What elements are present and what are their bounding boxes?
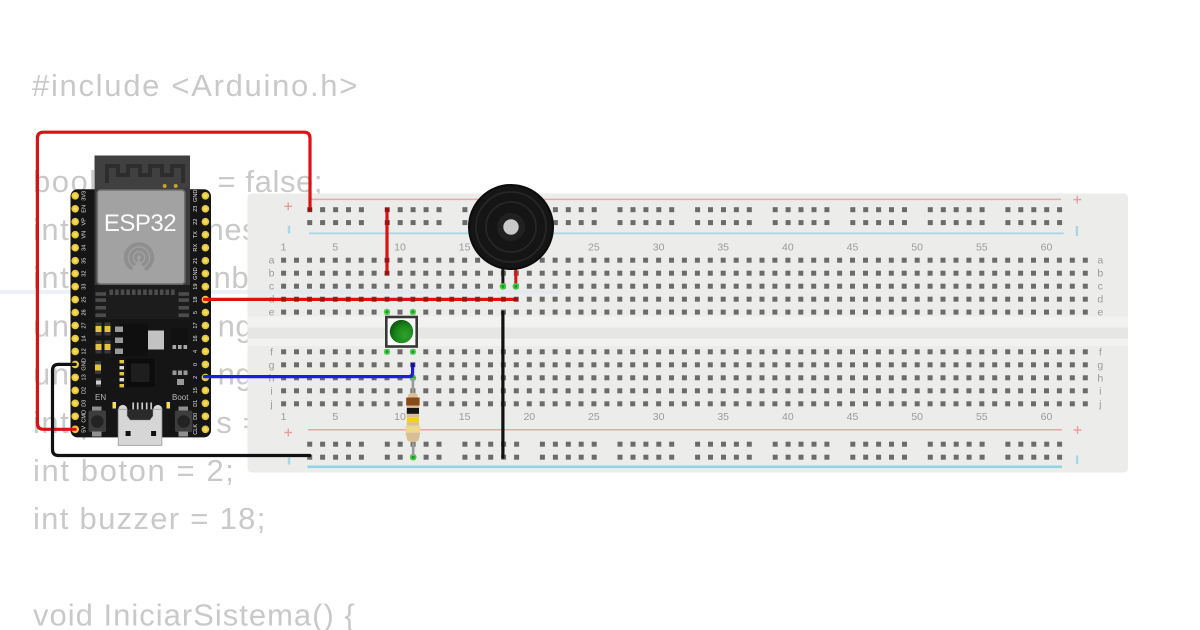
svg-text:35: 35 [81,258,87,264]
svg-text:D3: D3 [81,400,87,407]
svg-text:25: 25 [81,296,87,302]
svg-text:2: 2 [193,376,199,379]
svg-text:VN: VN [81,231,87,239]
svg-text:10: 10 [394,411,406,423]
svg-text:EN: EN [81,205,87,213]
svg-text:a: a [269,255,275,267]
svg-text:50: 50 [911,242,923,254]
svg-text:ESP32: ESP32 [104,210,176,237]
svg-text:GND: GND [193,190,199,202]
svg-text:b: b [269,268,275,280]
svg-text:3V3: 3V3 [81,191,87,201]
svg-text:h: h [269,372,275,384]
svg-text:35: 35 [717,411,729,423]
svg-text:5: 5 [332,411,338,423]
svg-text:0: 0 [193,363,199,366]
svg-text:27: 27 [81,322,87,328]
svg-text:18: 18 [193,296,199,302]
svg-text:D0: D0 [193,413,199,420]
svg-text:h: h [1097,372,1103,384]
svg-text:25: 25 [588,242,600,254]
svg-text:5: 5 [332,242,338,254]
svg-text:14: 14 [81,335,87,341]
svg-text:17: 17 [193,322,199,328]
svg-text:40: 40 [782,411,794,423]
svg-text:60: 60 [1041,411,1053,423]
svg-text:e: e [1097,307,1103,319]
svg-text:33: 33 [81,283,87,289]
svg-text:d: d [1097,294,1103,306]
svg-text:TX: TX [193,231,199,238]
svg-text:GND: GND [81,358,87,370]
svg-text:19: 19 [193,283,199,289]
svg-text:Boot: Boot [172,393,189,402]
svg-text:5: 5 [193,311,199,314]
svg-text:32: 32 [81,270,87,276]
svg-text:50: 50 [911,411,923,423]
svg-text:c: c [1098,281,1103,293]
svg-text:D2: D2 [81,387,87,394]
svg-text:13: 13 [81,374,87,380]
svg-text:e: e [269,307,275,319]
svg-text:f: f [270,346,273,358]
svg-text:g: g [269,359,275,371]
svg-text:f: f [1099,346,1102,358]
svg-text:55: 55 [976,242,988,254]
svg-text:GND: GND [193,267,199,279]
svg-text:EN: EN [95,393,106,402]
svg-text:12: 12 [81,348,87,354]
svg-text:VP: VP [81,218,87,226]
svg-text:16: 16 [193,335,199,341]
svg-text:#include <Arduino.h>: #include <Arduino.h> [32,68,359,103]
svg-text:23: 23 [193,206,199,212]
svg-text:5V: 5V [81,426,87,433]
svg-text:1: 1 [281,242,287,254]
svg-text:21: 21 [193,258,199,264]
svg-text:20: 20 [523,411,535,423]
svg-text:4: 4 [193,350,199,353]
svg-text:j: j [269,398,272,410]
svg-text:60: 60 [1041,242,1053,254]
svg-text:a: a [1097,255,1103,267]
svg-text:55: 55 [976,411,988,423]
svg-text:26: 26 [81,309,87,315]
svg-text:22: 22 [193,219,199,225]
svg-text:15: 15 [193,387,199,393]
svg-text:15: 15 [459,411,471,423]
svg-text:25: 25 [588,411,600,423]
svg-text:void IniciarSistema() {: void IniciarSistema() { [33,598,356,630]
svg-text:D1: D1 [193,400,199,407]
svg-text:int boton = 2;: int boton = 2; [33,453,236,488]
svg-text:j: j [1098,398,1101,410]
svg-text:34: 34 [81,245,87,251]
svg-text:i: i [270,385,272,397]
svg-text:b: b [1097,268,1103,280]
svg-text:int buzzer = 18;: int buzzer = 18; [33,501,267,536]
svg-text:30: 30 [653,411,665,423]
svg-text:RX: RX [193,244,199,252]
svg-text:g: g [1097,359,1103,371]
svg-text:i: i [1099,385,1101,397]
svg-text:1: 1 [281,411,287,423]
svg-text:10: 10 [394,242,406,254]
svg-text:35: 35 [717,242,729,254]
svg-text:45: 45 [847,411,859,423]
svg-text:CLK: CLK [193,424,199,435]
svg-text:15: 15 [459,242,471,254]
svg-text:c: c [269,281,274,293]
svg-text:30: 30 [653,242,665,254]
svg-text:45: 45 [847,242,859,254]
svg-text:CMD: CMD [81,410,87,423]
svg-text:40: 40 [782,242,794,254]
